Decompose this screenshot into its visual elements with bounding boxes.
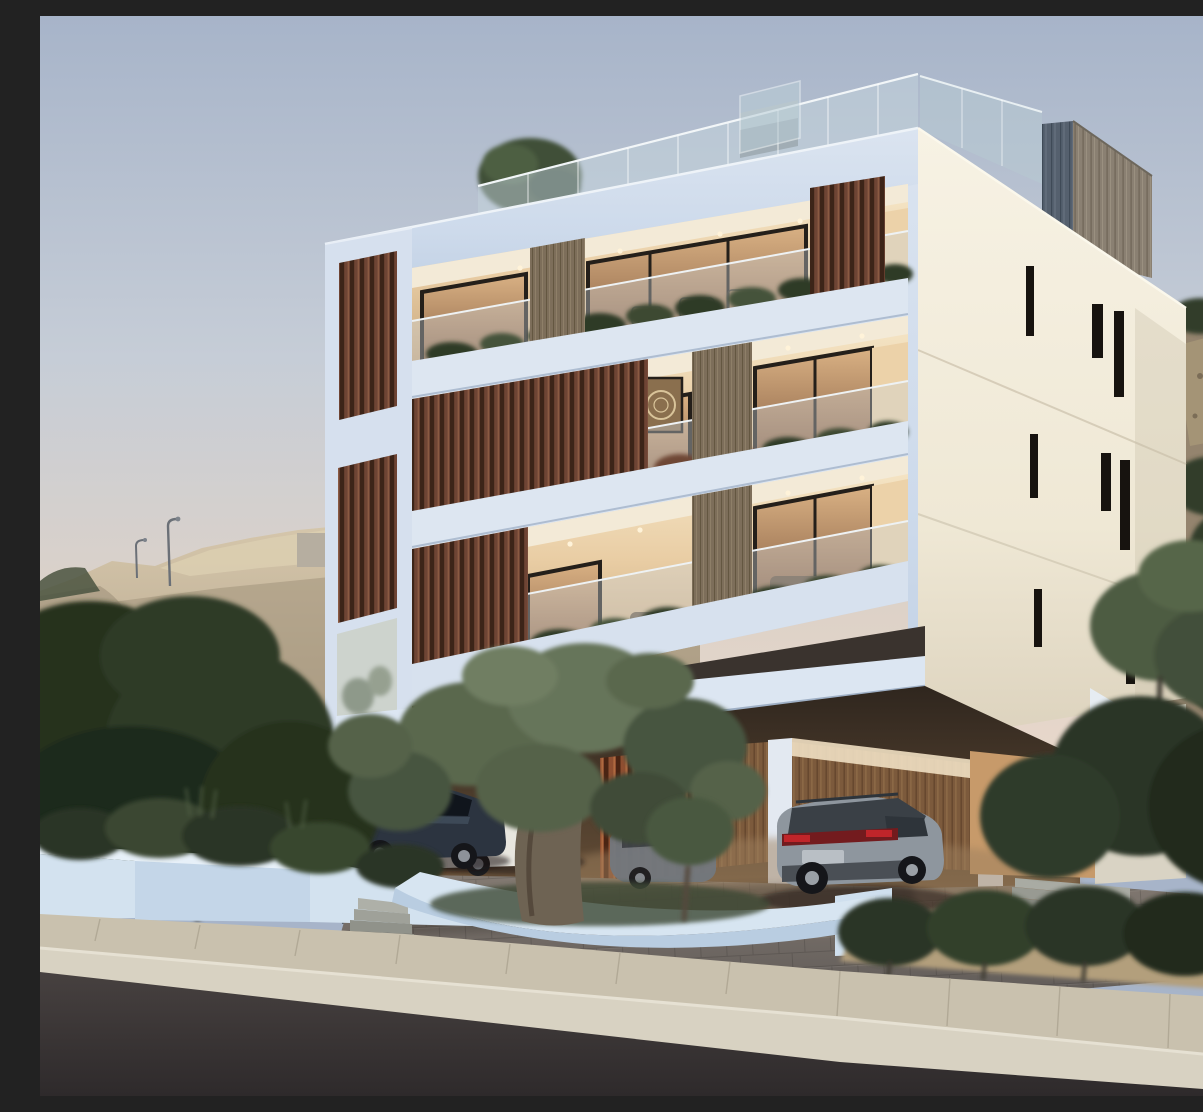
concrete-wall — [297, 533, 325, 567]
wood-column-3 — [692, 485, 752, 606]
left-bay — [325, 228, 412, 758]
scene-svg — [40, 16, 1203, 1096]
rendering-canvas — [40, 16, 1203, 1096]
wood-column-2 — [692, 342, 752, 462]
left-bay-slats-2 — [338, 454, 397, 623]
suv-plate — [802, 850, 844, 864]
left-bay-slats-1 — [339, 251, 397, 420]
wood-column-1 — [530, 238, 585, 346]
